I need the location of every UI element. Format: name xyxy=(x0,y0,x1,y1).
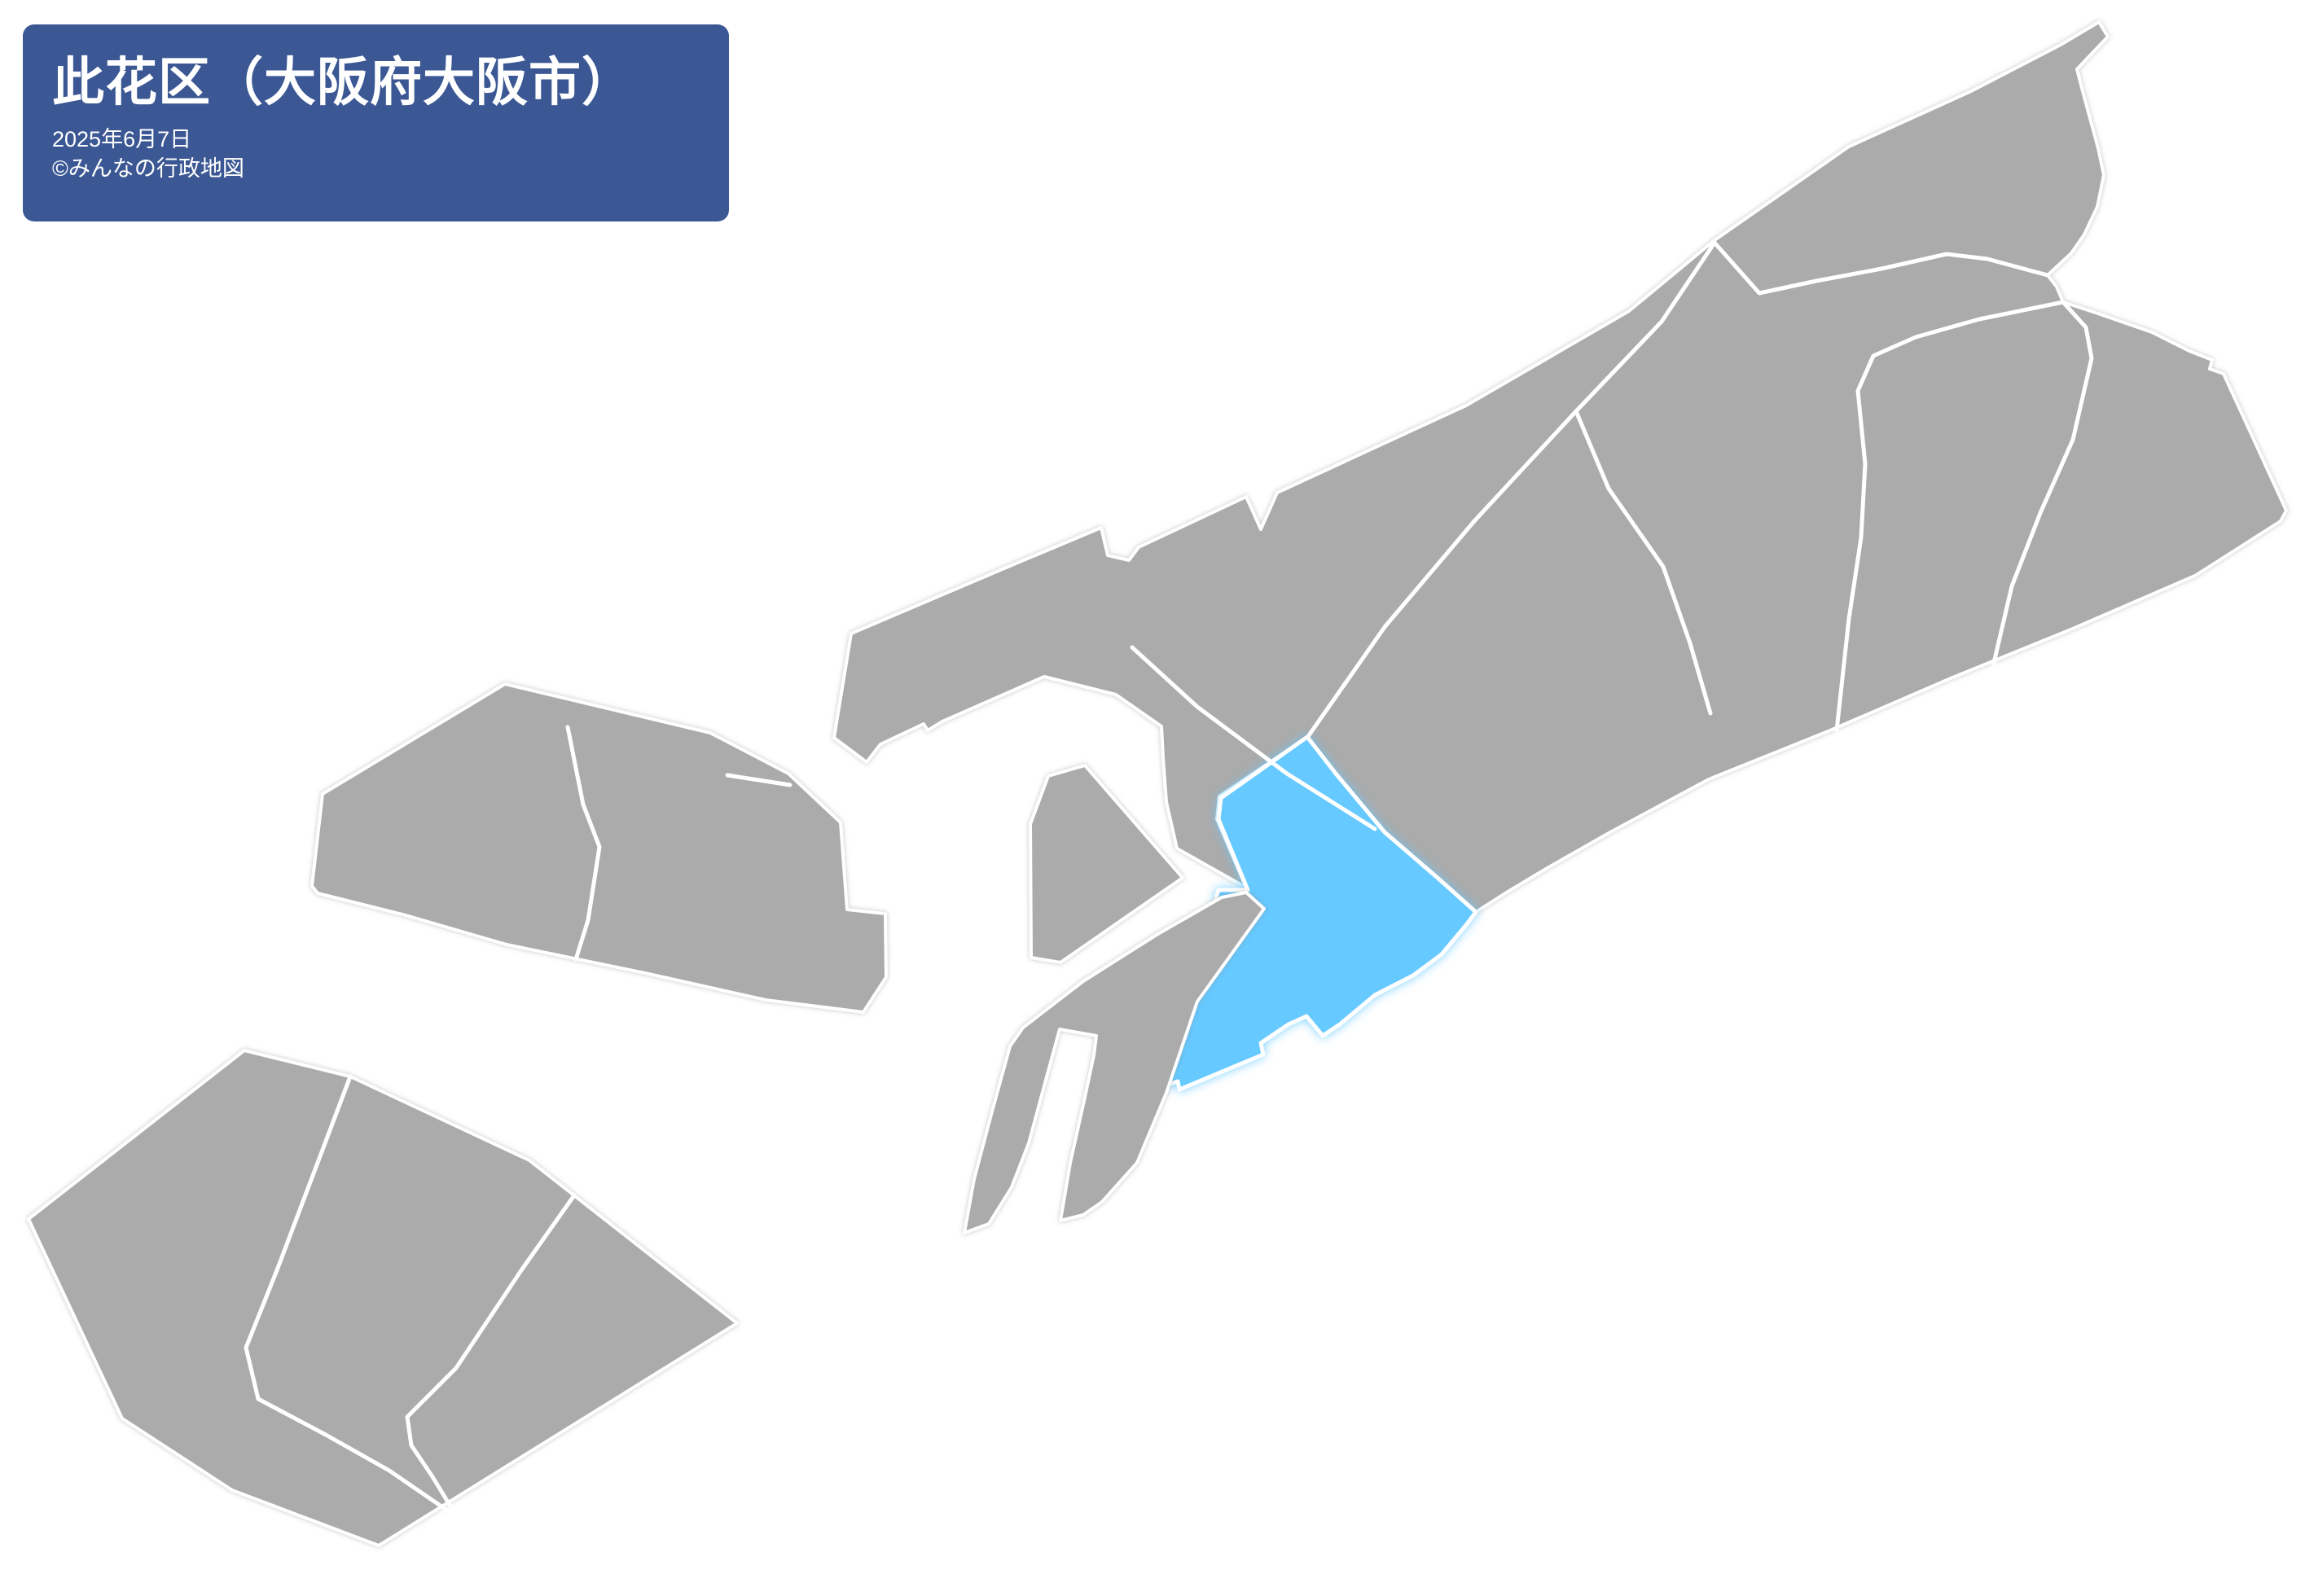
map-container xyxy=(0,0,2305,1596)
title-sub-block: 2025年6月7日 ©みんなの行政地図 xyxy=(52,125,700,183)
title-card: 此花区（大阪府大阪市） 2025年6月7日 ©みんなの行政地図 xyxy=(23,24,729,221)
map-credit: ©みんなの行政地図 xyxy=(52,155,700,184)
map-date: 2025年6月7日 xyxy=(52,125,700,155)
map-region-yumeshima-island xyxy=(29,1050,737,1546)
page: 此花区（大阪府大阪市） 2025年6月7日 ©みんなの行政地図 xyxy=(0,0,2305,1596)
page-title: 此花区（大阪府大阪市） xyxy=(52,47,700,117)
map-svg xyxy=(0,0,2305,1596)
